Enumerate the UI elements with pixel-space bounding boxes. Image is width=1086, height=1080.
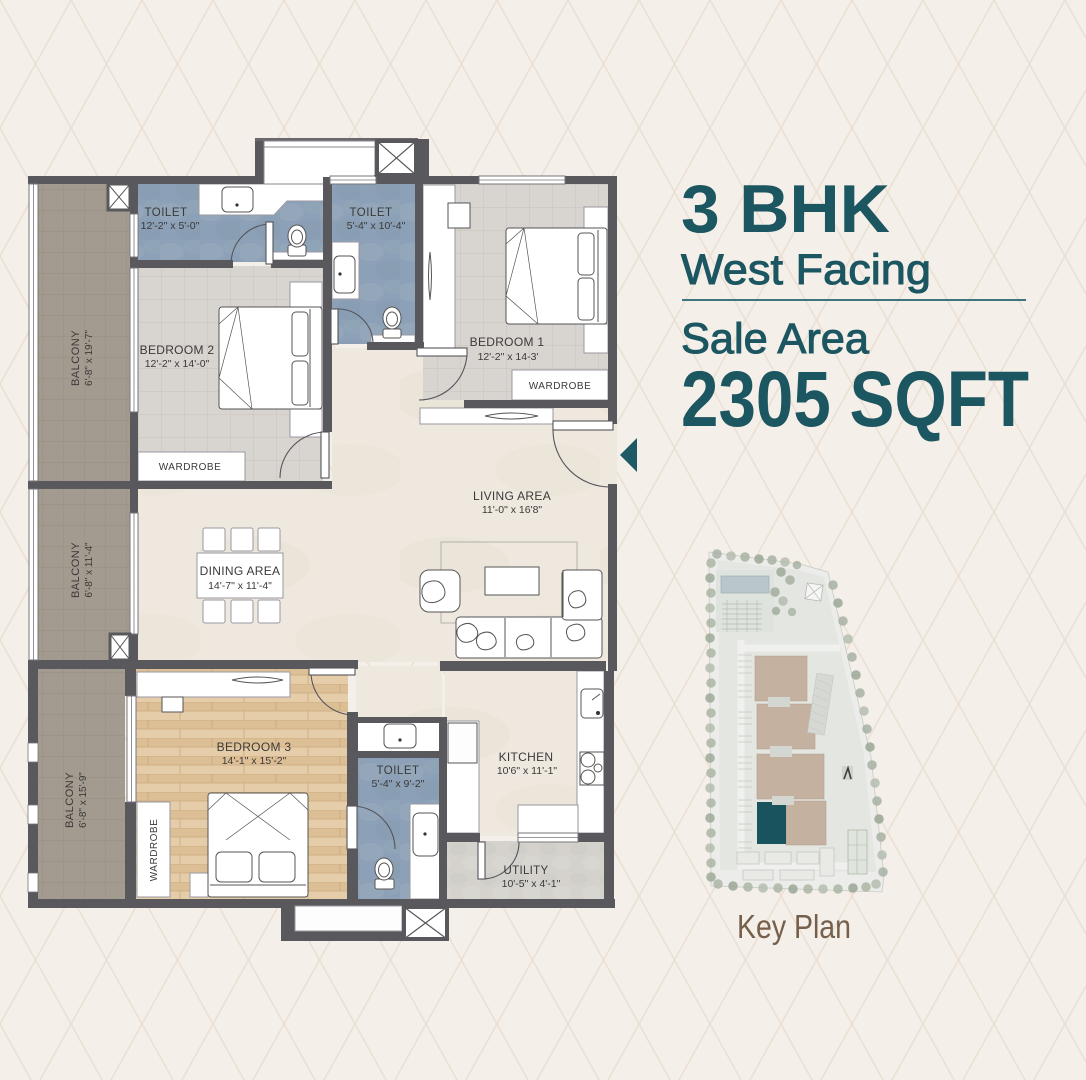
svg-text:TOILET: TOILET xyxy=(144,207,187,219)
svg-text:6'-8" x 19'-7": 6'-8" x 19'-7" xyxy=(84,330,95,386)
svg-text:10'6" x 11'-1": 10'6" x 11'-1" xyxy=(497,765,558,777)
svg-text:10'-5" x 4'-1": 10'-5" x 4'-1" xyxy=(502,878,561,890)
svg-text:12'-2" x 14'-0": 12'-2" x 14'-0" xyxy=(145,358,210,370)
svg-text:12'-2" x 5'-0": 12'-2" x 5'-0" xyxy=(141,220,200,232)
svg-text:BEDROOM 2: BEDROOM 2 xyxy=(140,343,215,357)
svg-text:2305 SQFT: 2305 SQFT xyxy=(681,354,1029,443)
svg-text:DINING AREA: DINING AREA xyxy=(200,564,281,578)
svg-text:11'-0" x 16'8": 11'-0" x 16'8" xyxy=(482,504,543,516)
svg-text:WARDROBE: WARDROBE xyxy=(529,381,592,392)
svg-text:6'-8" x 15'-9": 6'-8" x 15'-9" xyxy=(78,772,89,828)
svg-text:BALCONY: BALCONY xyxy=(70,542,82,598)
svg-text:5'-4" x 10'-4": 5'-4" x 10'-4" xyxy=(347,220,406,232)
svg-text:UTILITY: UTILITY xyxy=(504,865,549,877)
svg-text:14'-7" x 11'-4": 14'-7" x 11'-4" xyxy=(208,580,272,592)
svg-text:BEDROOM 1: BEDROOM 1 xyxy=(470,335,545,349)
svg-text:12'-2" x 14-3': 12'-2" x 14-3' xyxy=(478,351,539,363)
svg-text:5'-4" x 9'-2": 5'-4" x 9'-2" xyxy=(372,778,425,790)
svg-text:TOILET: TOILET xyxy=(349,207,392,219)
svg-text:6'-8" x 11'-4": 6'-8" x 11'-4" xyxy=(84,542,95,598)
svg-text:BEDROOM 3: BEDROOM 3 xyxy=(217,740,292,754)
svg-text:14'-1" x 15'-2": 14'-1" x 15'-2" xyxy=(222,755,287,767)
svg-text:TOILET: TOILET xyxy=(376,765,419,777)
svg-text:West Facing: West Facing xyxy=(681,246,931,294)
svg-text:BALCONY: BALCONY xyxy=(64,772,76,828)
svg-text:KITCHEN: KITCHEN xyxy=(499,750,554,764)
svg-text:Key Plan: Key Plan xyxy=(737,908,851,945)
svg-text:WARDROBE: WARDROBE xyxy=(149,819,160,882)
svg-text:WARDROBE: WARDROBE xyxy=(159,462,222,473)
svg-text:3 BHK: 3 BHK xyxy=(681,171,890,247)
svg-text:LIVING AREA: LIVING AREA xyxy=(473,489,551,503)
svg-text:BALCONY: BALCONY xyxy=(70,330,82,386)
